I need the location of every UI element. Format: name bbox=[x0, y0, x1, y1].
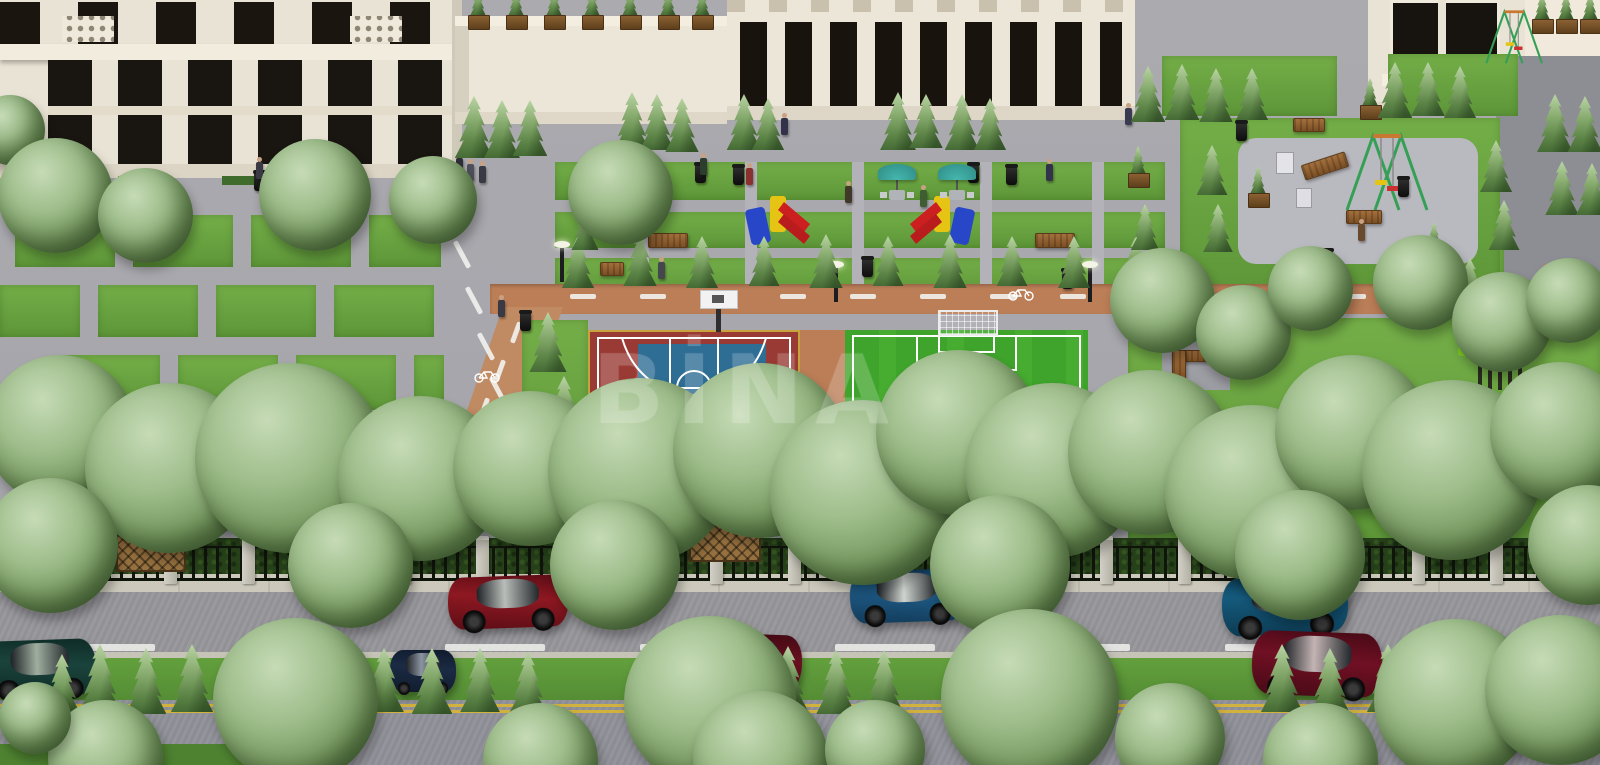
tree-round-icon bbox=[941, 609, 1119, 765]
tree-round-icon bbox=[1268, 246, 1353, 331]
tree-round-icon bbox=[0, 682, 71, 754]
tree-round-icon bbox=[288, 503, 413, 628]
tree-round-icon bbox=[389, 156, 477, 244]
watermark-text: BİNA bbox=[592, 336, 901, 446]
render-canvas: BİNA bbox=[0, 0, 1600, 765]
tree-round-icon bbox=[0, 138, 113, 253]
tree-round-icon bbox=[213, 618, 378, 765]
tree-round-icon bbox=[483, 703, 598, 765]
tree-round-icon bbox=[550, 500, 680, 630]
tree-round-icon bbox=[568, 140, 673, 245]
tree-round-icon bbox=[1263, 703, 1378, 765]
tree-round-icon bbox=[98, 168, 193, 263]
tree-round-icon bbox=[1235, 490, 1365, 620]
tree-round-icon bbox=[825, 700, 925, 765]
tree-round-icon bbox=[1115, 683, 1225, 765]
tree-round-icon bbox=[1528, 485, 1600, 605]
tree-round-icon bbox=[1526, 258, 1600, 343]
tree-round-icon bbox=[259, 139, 371, 251]
